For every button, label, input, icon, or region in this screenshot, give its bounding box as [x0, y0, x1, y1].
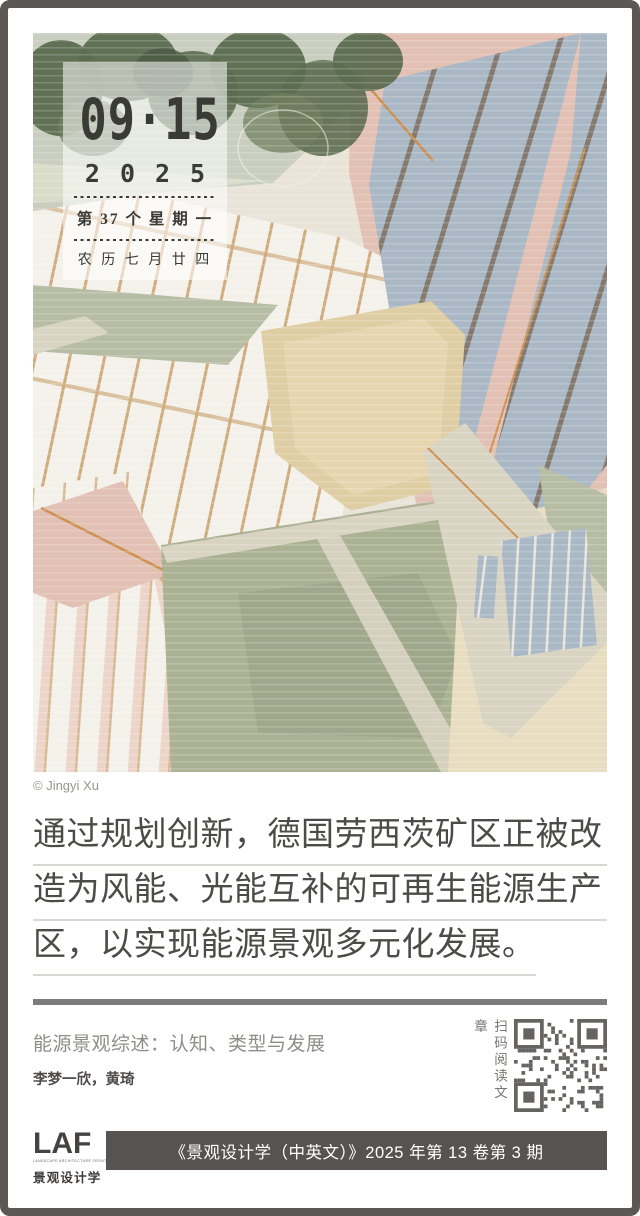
quote-line-1: 通过规划创新，德国劳西茨矿区正被改	[33, 819, 607, 866]
laf-logo-caption: LANDSCAPE ARCHITECTURE FRONTIERS	[33, 1159, 106, 1163]
quote-line-2: 造为风能、光能互补的可再生能源生产	[33, 874, 607, 921]
date-large: 09·15	[79, 92, 210, 149]
section-divider	[33, 999, 607, 1005]
qr-caption-vertical: 扫码阅读文章	[469, 1019, 509, 1112]
footer-row: LAF LANDSCAPE ARCHITECTURE FRONTIERS 景观设…	[33, 1131, 607, 1186]
dashed-divider-bottom	[74, 239, 216, 241]
site-plan-illustration: 09·15 2025 第 37 个 星 期 一 农 历 七 月 廿 四	[33, 33, 607, 772]
date-year: 2025	[73, 161, 237, 186]
article-row: 能源景观综述：认知、类型与发展 李梦一欣，黄琦 扫码阅读文章	[33, 1019, 607, 1112]
date-card: 09·15 2025 第 37 个 星 期 一 农 历 七 月 廿 四	[63, 62, 227, 280]
issue-bar: 《景观设计学（中英文）》2025 年第 13 卷第 3 期	[106, 1131, 607, 1170]
photo-credit: © Jingyi Xu	[33, 778, 607, 793]
laf-logo-text: LAF	[33, 1131, 106, 1157]
laf-logo: LAF LANDSCAPE ARCHITECTURE FRONTIERS 景观设…	[33, 1131, 106, 1186]
issue-text: 《景观设计学（中英文）》2025 年第 13 卷第 3 期	[170, 1139, 544, 1163]
qr-group: 扫码阅读文章	[469, 1019, 607, 1112]
quote-block: 通过规划创新，德国劳西茨矿区正被改 造为风能、光能互补的可再生能源生产 区，以实…	[33, 819, 607, 984]
dashed-divider-top	[74, 196, 216, 198]
lunar-line: 农 历 七 月 廿 四	[63, 249, 227, 269]
week-line: 第 37 个 星 期 一	[63, 207, 227, 229]
article-title: 能源景观综述：认知、类型与发展	[33, 1029, 469, 1056]
article-info: 能源景观综述：认知、类型与发展 李梦一欣，黄琦	[33, 1019, 469, 1089]
poster-frame: 09·15 2025 第 37 个 星 期 一 农 历 七 月 廿 四 © Ji…	[0, 0, 640, 1216]
laf-logo-chinese: 景观设计学	[33, 1167, 106, 1186]
qr-code	[514, 1019, 607, 1112]
quote-line-3: 区，以实现能源景观多元化发展。	[33, 929, 536, 976]
article-authors: 李梦一欣，黄琦	[33, 1068, 469, 1089]
